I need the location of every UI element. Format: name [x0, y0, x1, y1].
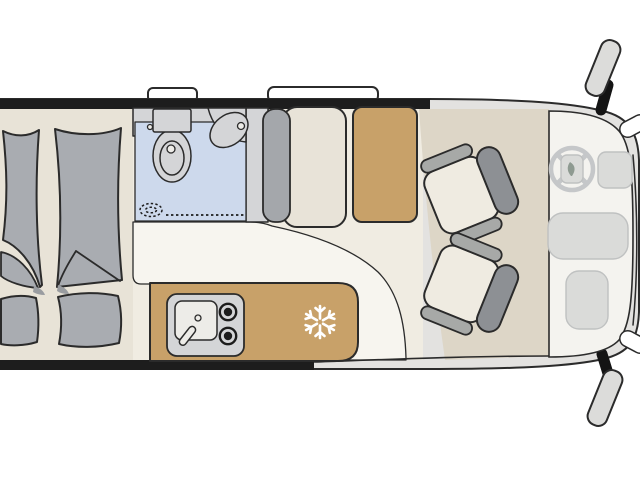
burner-2-center	[224, 332, 232, 340]
bed-pillow-left	[1, 296, 38, 345]
mirror-blade	[585, 367, 625, 428]
bench-backrest	[263, 109, 290, 222]
toilet-cistern	[153, 109, 191, 132]
toilet	[153, 109, 191, 182]
burner-1-center	[224, 308, 232, 316]
campervan-floorplan	[0, 0, 640, 480]
floorplan-page	[0, 0, 640, 480]
washbasin-tap	[238, 123, 245, 130]
tall-cabinet	[353, 107, 417, 222]
bench-cushion	[283, 107, 346, 227]
side-mirror-right	[585, 354, 625, 429]
center-console	[548, 213, 628, 259]
instrument-cluster	[598, 152, 632, 188]
sink-drain	[195, 315, 201, 321]
kitchen	[150, 283, 358, 361]
side-mirror-left	[583, 37, 623, 110]
washroom	[133, 105, 268, 222]
glove-box	[566, 271, 608, 329]
bed-pillow-right	[58, 293, 121, 347]
rear-beds	[1, 128, 122, 347]
bed-blanket-right	[55, 128, 122, 287]
toilet-flush-button	[167, 145, 175, 153]
bench-seat	[263, 107, 346, 227]
wall-fitting-dot	[148, 125, 153, 130]
mirror-blade	[583, 37, 623, 98]
